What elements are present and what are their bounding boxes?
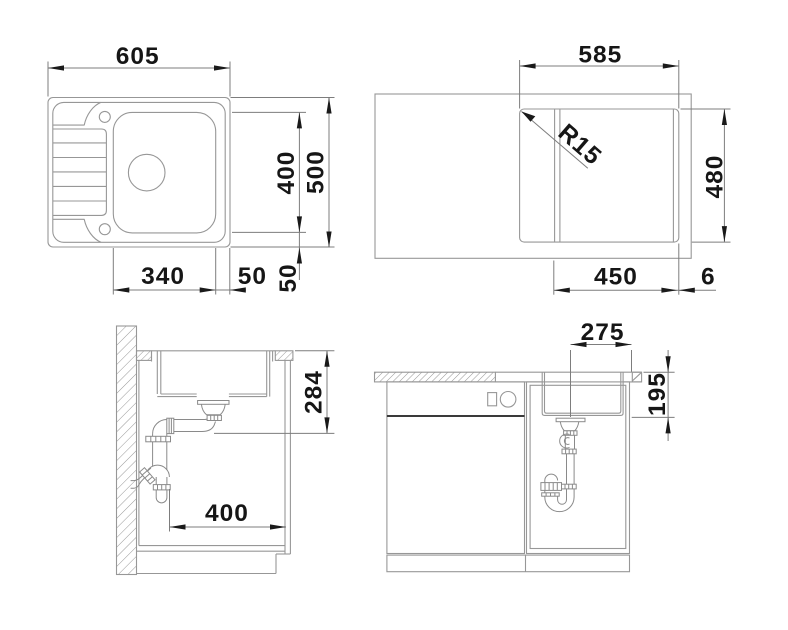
svg-text:605: 605 [116,43,160,70]
svg-text:400: 400 [205,500,249,527]
svg-text:6: 6 [701,264,716,291]
svg-text:340: 340 [141,263,185,290]
svg-text:50: 50 [238,263,267,290]
svg-text:R15: R15 [553,119,607,171]
svg-text:450: 450 [594,264,638,291]
svg-text:275: 275 [581,319,625,346]
svg-text:585: 585 [578,42,622,69]
svg-text:195: 195 [644,372,671,416]
svg-text:500: 500 [303,150,330,194]
svg-text:480: 480 [701,155,728,199]
svg-text:400: 400 [273,151,300,195]
svg-text:284: 284 [301,370,328,414]
svg-text:50: 50 [275,263,302,292]
